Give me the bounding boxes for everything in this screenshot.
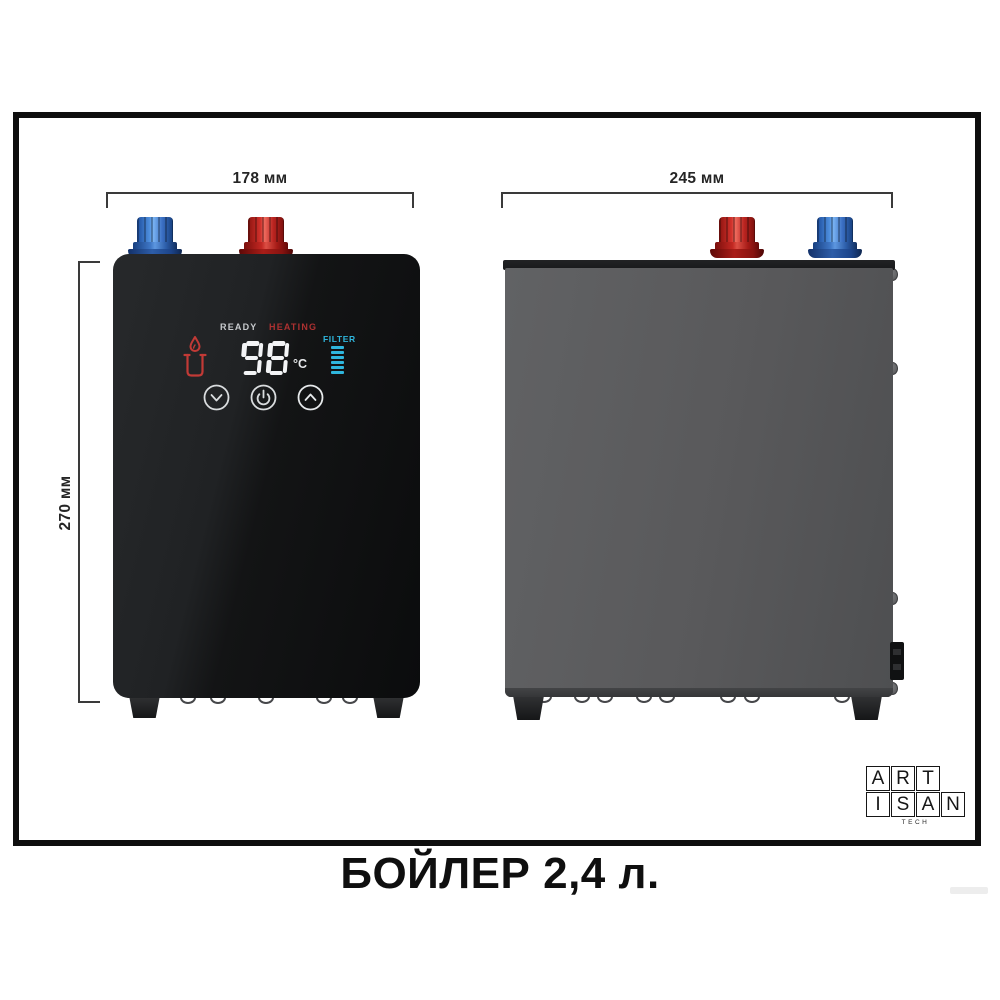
hot-water-connector-front [243,217,289,258]
logo-letter-box: N [941,792,965,817]
filter-level-gauge [331,346,344,376]
hot-water-connector-side [714,217,760,258]
side-width-label: 245 мм [501,170,893,188]
temperature-unit-label: °C [293,357,307,371]
power-button [250,384,277,411]
product-title: БОЙЛЕР 2,4 л. [0,849,1000,899]
filter-label: FILTER [323,334,356,344]
cold-water-connector-side [812,217,858,258]
logo-letter-box: T [916,766,940,791]
chevron-up-icon [306,395,316,401]
front-width-dimension: 178 мм [106,170,414,208]
heating-status-label: HEATING [269,322,317,332]
logo-letter-box: I [866,792,890,817]
temperature-up-button [297,384,324,411]
height-label: 270 мм [57,453,75,553]
side-width-bracket [501,192,893,208]
chevron-down-icon [212,395,222,401]
product-image: 178 мм 245 мм 270 мм READY HEATING °C FI… [0,0,1000,1000]
logo-letter-box: A [866,766,890,791]
temperature-down-button [203,384,230,411]
front-width-label: 178 мм [106,170,414,188]
logo-letter-box: A [916,792,940,817]
power-socket [890,642,904,680]
logo-letters: ARTISAN [866,766,965,817]
side-bottom-edge [505,688,893,697]
brand-logo: ARTISAN TECH [866,766,965,826]
watermark [950,887,988,894]
hot-cup-flame-icon [183,335,207,379]
logo-letter-box: R [891,766,915,791]
boiler-front-panel [113,254,420,698]
height-bracket [78,261,100,703]
side-width-dimension: 245 мм [501,170,893,208]
ready-status-label: READY [220,322,258,332]
cold-water-connector-front [132,217,178,258]
boiler-side-panel [505,268,893,697]
logo-tagline: TECH [866,819,965,826]
temperature-readout [240,341,290,375]
front-width-bracket [106,192,414,208]
logo-letter-box: S [891,792,915,817]
